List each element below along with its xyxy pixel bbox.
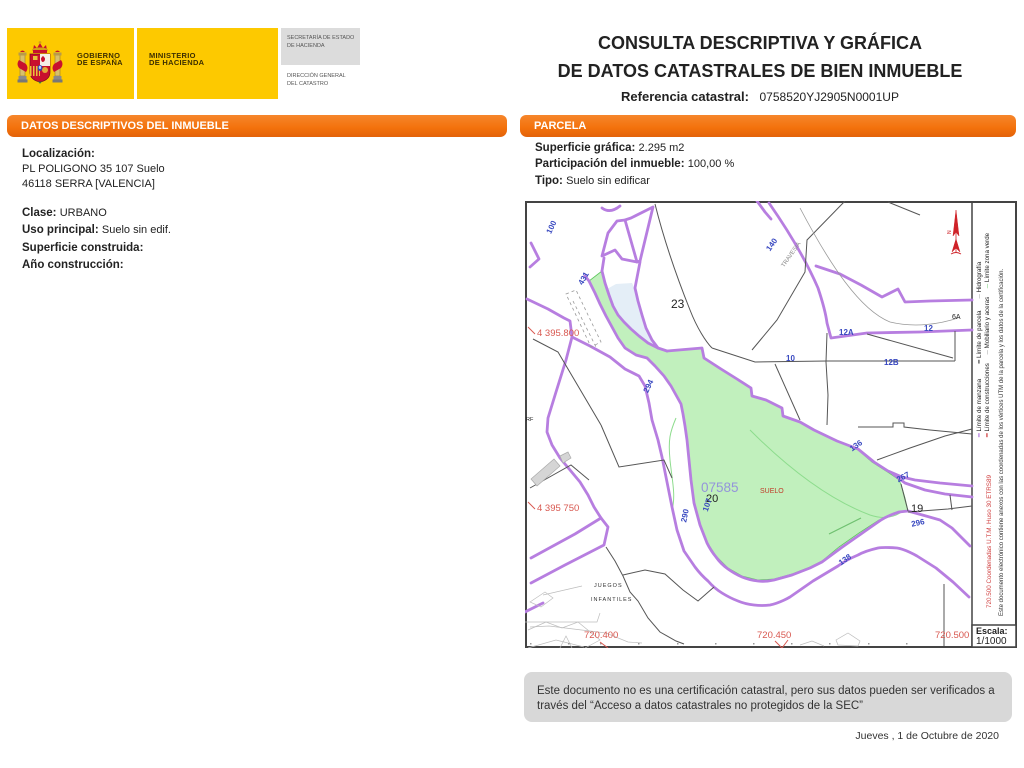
svg-text:1/1000: 1/1000: [976, 636, 1007, 647]
svg-text:07585: 07585: [701, 480, 739, 495]
svg-text:12: 12: [924, 324, 933, 333]
svg-text:4 395.800: 4 395.800: [537, 328, 579, 339]
svg-text:4 395 750: 4 395 750: [537, 503, 579, 514]
svg-text:720.500: 720.500: [935, 630, 969, 641]
svg-text:10: 10: [786, 354, 795, 363]
svg-text:12A: 12A: [839, 328, 854, 337]
svg-text:Escala:: Escala:: [976, 626, 1008, 636]
svg-text:6A: 6A: [952, 314, 961, 321]
svg-text:SUELO: SUELO: [760, 488, 784, 495]
svg-text:Este documento electrónico con: Este documento electrónico contiene anex…: [999, 268, 1005, 616]
svg-text:720.450: 720.450: [757, 630, 791, 641]
svg-text:720.500 Coordenadas U.T.M. Hus: 720.500 Coordenadas U.T.M. Huso 30 ETRS8…: [986, 474, 993, 608]
svg-text:12B: 12B: [884, 358, 899, 367]
svg-text:JUEGOS: JUEGOS: [594, 583, 623, 589]
svg-text:19: 19: [911, 503, 923, 515]
svg-text:━ Límite de manzana ━: ━ Límite de manzana ━ Límite de parcela …: [976, 261, 983, 438]
svg-text:N: N: [947, 230, 953, 234]
svg-text:RF: RF: [526, 417, 534, 423]
svg-text:━ Límite de construcciones: ━ Límite de construcciones ─ Mobiliario …: [984, 232, 991, 438]
svg-text:23: 23: [671, 297, 685, 311]
svg-text:720.400: 720.400: [584, 630, 618, 641]
svg-text:INFANTILES: INFANTILES: [591, 597, 632, 603]
